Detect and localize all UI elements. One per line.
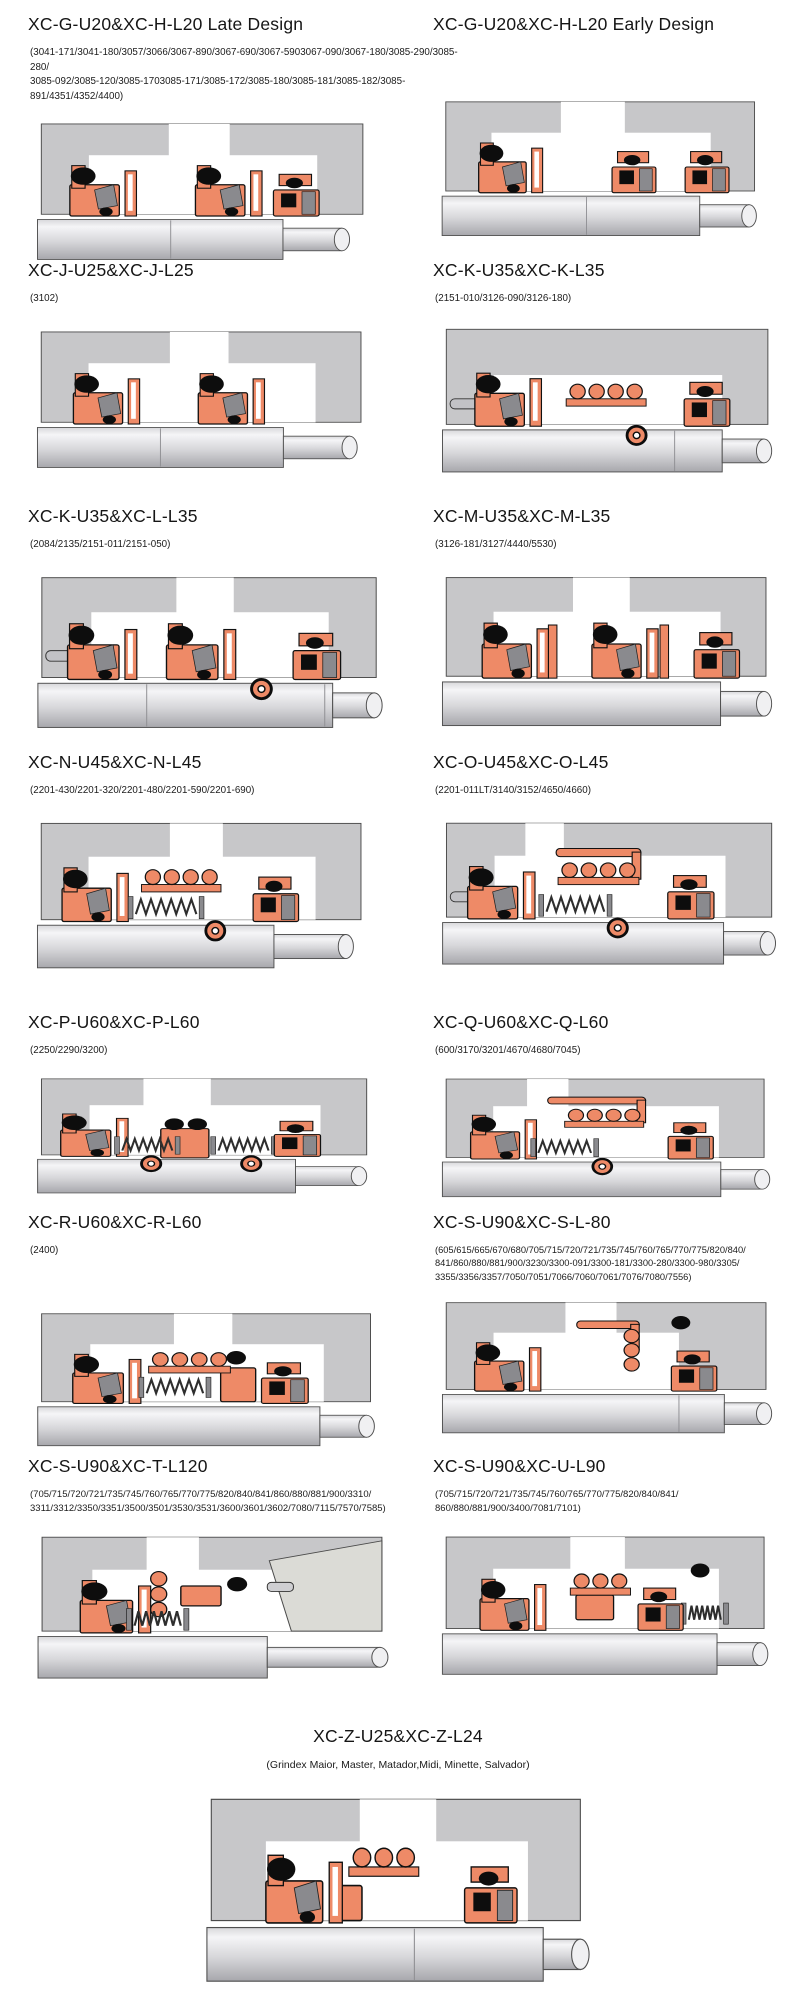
seal-model-title: XC-Q-U60&XC-Q-L60 bbox=[433, 1012, 796, 1033]
seal-section-g-early: XC-G-U20&XC-H-L20 Early Design bbox=[433, 14, 793, 245]
seal-model-title: XC-S-U90&XC-U-L90 bbox=[433, 1456, 796, 1477]
seal-section-q: XC-Q-U60&XC-Q-L60 (600/3170/3201/4670/46… bbox=[433, 1012, 796, 1205]
seal-cross-section-diagram bbox=[28, 325, 378, 477]
seal-model-title: XC-J-U25&XC-J-L25 bbox=[28, 260, 428, 281]
seal-model-title: XC-S-U90&XC-T-L120 bbox=[28, 1456, 438, 1477]
part-numbers: (3041-171/3041-180/3057/3066/3067-890/30… bbox=[30, 46, 476, 105]
seal-section-g-late: XC-G-U20&XC-H-L20 Late Design (3041-171/… bbox=[28, 14, 488, 269]
seal-cross-section-diagram bbox=[28, 1530, 400, 1688]
part-numbers: (605/615/665/670/680/705/715/720/721/735… bbox=[435, 1244, 796, 1284]
seal-model-title: XC-M-U35&XC-M-L35 bbox=[433, 506, 796, 527]
seal-model-title: XC-R-U60&XC-R-L60 bbox=[28, 1212, 428, 1233]
seal-cross-section-diagram bbox=[433, 322, 785, 482]
part-numbers: (3126-181/3127/4440/5530) bbox=[435, 538, 796, 553]
seal-section-u-l90: XC-S-U90&XC-U-L90 (705/715/720/721/735/7… bbox=[433, 1456, 796, 1684]
seal-model-title: XC-G-U20&XC-H-L20 Early Design bbox=[433, 14, 793, 35]
seal-cross-section-diagram bbox=[196, 1790, 600, 1994]
seal-model-title: XC-K-U35&XC-K-L35 bbox=[433, 260, 796, 281]
part-numbers: (2400) bbox=[30, 1244, 428, 1259]
seal-model-title: XC-S-U90&XC-S-L-80 bbox=[433, 1212, 796, 1233]
seal-section-r: XC-R-U60&XC-R-L60 (2400) bbox=[28, 1212, 428, 1455]
seal-section-j: XC-J-U25&XC-J-L25 (3102) bbox=[28, 260, 428, 477]
seal-model-title: XC-Z-U25&XC-Z-L24 bbox=[0, 1726, 796, 1747]
part-numbers: (Grindex Maior, Master, Matador,Midi, Mi… bbox=[0, 1758, 796, 1774]
seal-section-n: XC-N-U45&XC-N-L45 (2201-430/2201-320/220… bbox=[28, 752, 428, 978]
seal-cross-section-diagram bbox=[28, 1307, 388, 1455]
seal-cross-section-diagram bbox=[28, 1073, 384, 1201]
seal-cross-section-diagram bbox=[433, 816, 789, 974]
part-numbers: (2201-011LT/3140/3152/4650/4660) bbox=[435, 784, 796, 799]
part-numbers: (705/715/720/721/735/745/760/765/770/775… bbox=[30, 1488, 438, 1517]
seal-cross-section-diagram bbox=[433, 1530, 781, 1684]
seal-section-o: XC-O-U45&XC-O-L45 (2201-011LT/3140/3152/… bbox=[433, 752, 796, 974]
seal-cross-section-diagram bbox=[433, 95, 771, 245]
seal-section-kl: XC-K-U35&XC-L-L35 (2084/2135/2151-011/21… bbox=[28, 506, 428, 738]
seal-cross-section-diagram bbox=[28, 570, 394, 738]
seal-section-p: XC-P-U60&XC-P-L60 (2250/2290/3200) bbox=[28, 1012, 428, 1201]
part-numbers: (705/715/720/721/735/745/760/765/770/775… bbox=[435, 1488, 796, 1517]
seal-section-z: XC-Z-U25&XC-Z-L24 (Grindex Maior, Master… bbox=[0, 1726, 796, 1994]
seal-model-title: XC-P-U60&XC-P-L60 bbox=[28, 1012, 428, 1033]
seal-cross-section-diagram bbox=[433, 1296, 783, 1442]
seal-section-t-l120: XC-S-U90&XC-T-L120 (705/715/720/721/735/… bbox=[28, 1456, 438, 1688]
seal-model-title: XC-N-U45&XC-N-L45 bbox=[28, 752, 428, 773]
seal-section-k: XC-K-U35&XC-K-L35 (2151-010/3126-090/312… bbox=[433, 260, 796, 482]
seal-section-m: XC-M-U35&XC-M-L35 (3126-181/3127/4440/55… bbox=[433, 506, 796, 736]
seal-model-title: XC-G-U20&XC-H-L20 Late Design bbox=[28, 14, 488, 35]
part-numbers: (2201-430/2201-320/2201-480/2201-590/220… bbox=[30, 784, 428, 799]
part-numbers: (2250/2290/3200) bbox=[30, 1044, 428, 1059]
seal-section-s-l80: XC-S-U90&XC-S-L-80 (605/615/665/670/680/… bbox=[433, 1212, 796, 1442]
part-numbers: (600/3170/3201/4670/4680/7045) bbox=[435, 1044, 796, 1059]
seal-cross-section-diagram bbox=[433, 570, 783, 736]
part-numbers: (3102) bbox=[30, 292, 428, 307]
seal-cross-section-diagram bbox=[28, 816, 378, 978]
seal-cross-section-diagram bbox=[28, 117, 380, 269]
seal-model-title: XC-K-U35&XC-L-L35 bbox=[28, 506, 428, 527]
seal-model-title: XC-O-U45&XC-O-L45 bbox=[433, 752, 796, 773]
part-numbers: (2084/2135/2151-011/2151-050) bbox=[30, 538, 428, 553]
catalog-page: XC-G-U20&XC-H-L20 Late Design (3041-171/… bbox=[0, 0, 796, 2004]
seal-cross-section-diagram bbox=[433, 1073, 781, 1205]
part-numbers: (2151-010/3126-090/3126-180) bbox=[435, 292, 796, 307]
